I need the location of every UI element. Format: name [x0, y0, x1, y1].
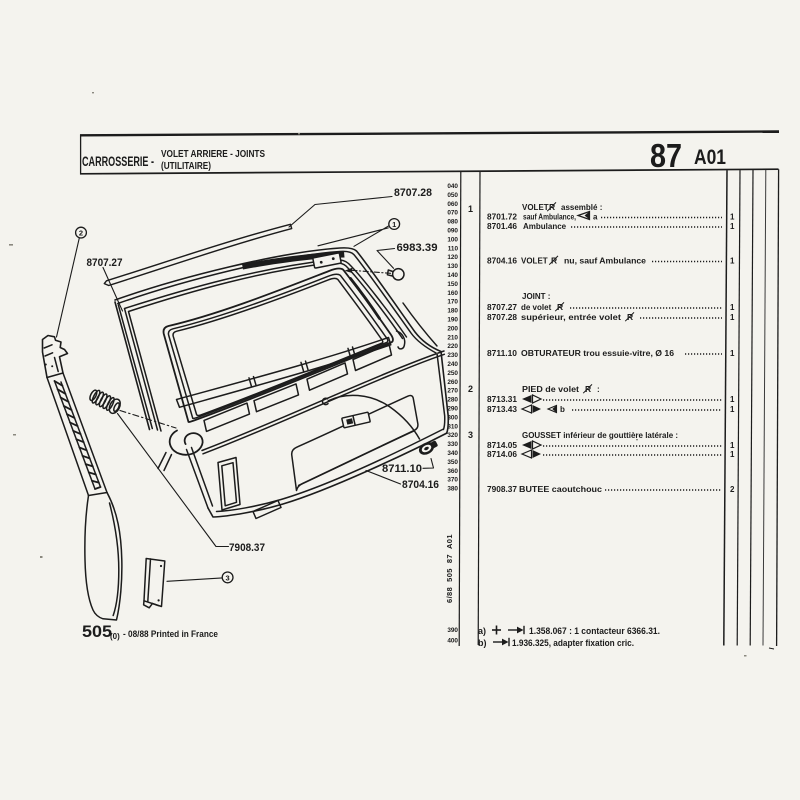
- svg-text:PIED de volet: PIED de volet: [522, 385, 579, 394]
- svg-text:330: 330: [447, 441, 458, 448]
- svg-text:310: 310: [447, 423, 458, 430]
- svg-text:A01: A01: [694, 146, 726, 169]
- svg-text:JOINT :: JOINT :: [522, 292, 550, 301]
- svg-text:8701.72: 8701.72: [487, 213, 518, 222]
- svg-text:2: 2: [79, 229, 83, 238]
- svg-text:b: b: [560, 405, 565, 414]
- svg-text:270: 270: [447, 388, 458, 395]
- svg-text:1: 1: [730, 222, 735, 231]
- svg-text:230: 230: [447, 352, 458, 359]
- svg-text:8707.27: 8707.27: [487, 303, 518, 312]
- svg-text:8707.28: 8707.28: [394, 187, 432, 199]
- svg-text:1: 1: [730, 313, 735, 322]
- svg-text:160: 160: [447, 290, 458, 297]
- svg-text:2: 2: [468, 384, 473, 394]
- svg-text:VOLET: VOLET: [521, 257, 548, 266]
- svg-text::: :: [597, 385, 600, 394]
- svg-text:assemblé :: assemblé :: [561, 203, 602, 212]
- svg-text:2: 2: [730, 485, 735, 494]
- svg-text:040: 040: [447, 183, 458, 190]
- svg-text:1: 1: [392, 220, 396, 229]
- svg-text:240: 240: [447, 361, 458, 368]
- svg-text:6/88 505 87 A01: 6/88 505 87 A01: [445, 534, 454, 603]
- svg-text:050: 050: [447, 192, 458, 199]
- svg-text:090: 090: [447, 228, 458, 235]
- svg-text:8714.05: 8714.05: [487, 441, 518, 450]
- svg-text:Ambulance: Ambulance: [523, 222, 567, 231]
- svg-text:8707.27: 8707.27: [87, 257, 123, 269]
- svg-text:(0): (0): [110, 632, 120, 641]
- svg-text:170: 170: [447, 299, 458, 306]
- svg-text:1: 1: [730, 395, 735, 404]
- svg-text:210: 210: [447, 334, 458, 341]
- svg-text:OBTURATEUR trou essuie-vitre,: OBTURATEUR trou essuie-vitre, Ø 16: [521, 349, 675, 358]
- svg-text:- 08/88 Printed in France: - 08/88 Printed in France: [123, 629, 218, 639]
- svg-text:400: 400: [447, 638, 458, 645]
- svg-text:3: 3: [226, 573, 230, 582]
- svg-text:sauf Ambulance,: sauf Ambulance,: [523, 213, 576, 222]
- svg-text:supérieur, entrée volet: supérieur, entrée volet: [521, 313, 621, 322]
- svg-text:1.358.067 : 1 contacteur 6366.: 1.358.067 : 1 contacteur 6366.31.: [529, 626, 660, 636]
- svg-text:8714.06: 8714.06: [487, 450, 518, 459]
- svg-text:8707.28: 8707.28: [487, 313, 518, 322]
- svg-text:6983.39: 6983.39: [397, 242, 438, 254]
- svg-text:b): b): [478, 638, 487, 648]
- svg-text:120: 120: [447, 254, 458, 261]
- svg-text:8711.10: 8711.10: [382, 463, 422, 475]
- svg-text:280: 280: [447, 397, 458, 404]
- svg-text:de volet: de volet: [521, 303, 552, 312]
- svg-text:370: 370: [447, 477, 458, 484]
- svg-text:a: a: [593, 213, 598, 222]
- svg-text:1: 1: [730, 303, 735, 312]
- svg-text:VOLET ARRIERE - JOINTS: VOLET ARRIERE - JOINTS: [161, 149, 265, 160]
- svg-text:8711.10: 8711.10: [487, 349, 518, 358]
- svg-text:250: 250: [447, 370, 458, 377]
- svg-text:340: 340: [447, 450, 458, 457]
- svg-text:350: 350: [447, 459, 458, 466]
- svg-text:1: 1: [730, 405, 735, 414]
- svg-text:380: 380: [447, 486, 458, 493]
- svg-text:8704.16: 8704.16: [487, 257, 518, 266]
- svg-text:nu, sauf Ambulance: nu, sauf Ambulance: [564, 257, 647, 266]
- svg-text:070: 070: [447, 210, 458, 217]
- svg-text:GOUSSET inférieur de gouttière: GOUSSET inférieur de gouttière latérale …: [522, 431, 678, 440]
- svg-text:080: 080: [447, 219, 458, 226]
- svg-text:150: 150: [447, 281, 458, 288]
- svg-text:BUTEE caoutchouc: BUTEE caoutchouc: [519, 485, 603, 494]
- svg-text:7908.37: 7908.37: [487, 485, 518, 494]
- svg-text:CARROSSERIE -: CARROSSERIE -: [82, 154, 154, 169]
- svg-text:130: 130: [447, 263, 458, 270]
- svg-text:1: 1: [730, 349, 735, 358]
- svg-text:8713.31: 8713.31: [487, 395, 518, 404]
- svg-text:360: 360: [447, 468, 458, 475]
- svg-text:(UTILITAIRE): (UTILITAIRE): [161, 161, 211, 172]
- svg-text:1: 1: [730, 441, 735, 450]
- svg-text:1: 1: [730, 213, 735, 222]
- svg-text:8704.16: 8704.16: [402, 479, 439, 491]
- svg-text:200: 200: [447, 325, 458, 332]
- svg-text:1.936.325, adapter fixation cr: 1.936.325, adapter fixation cric.: [512, 638, 634, 648]
- svg-text:140: 140: [447, 272, 458, 279]
- svg-text:1: 1: [468, 204, 473, 214]
- svg-text:180: 180: [447, 308, 458, 315]
- svg-text:100: 100: [447, 236, 458, 243]
- svg-text:a): a): [478, 626, 486, 636]
- svg-text:1: 1: [730, 257, 735, 266]
- svg-text:87: 87: [650, 137, 682, 174]
- svg-text:1: 1: [730, 450, 735, 459]
- svg-text:VOLET: VOLET: [522, 203, 549, 212]
- svg-text:8713.43: 8713.43: [487, 405, 518, 414]
- svg-text:220: 220: [447, 343, 458, 350]
- svg-text:290: 290: [447, 406, 458, 413]
- svg-text:190: 190: [447, 317, 458, 324]
- svg-text:8701.46: 8701.46: [487, 222, 518, 231]
- svg-text:260: 260: [447, 379, 458, 386]
- svg-text:060: 060: [447, 201, 458, 208]
- svg-text:390: 390: [447, 627, 458, 634]
- svg-text:7908.37: 7908.37: [229, 542, 265, 554]
- svg-text:3: 3: [468, 430, 473, 440]
- svg-text:320: 320: [447, 432, 458, 439]
- svg-text:505: 505: [82, 623, 112, 641]
- svg-text:110: 110: [448, 245, 459, 252]
